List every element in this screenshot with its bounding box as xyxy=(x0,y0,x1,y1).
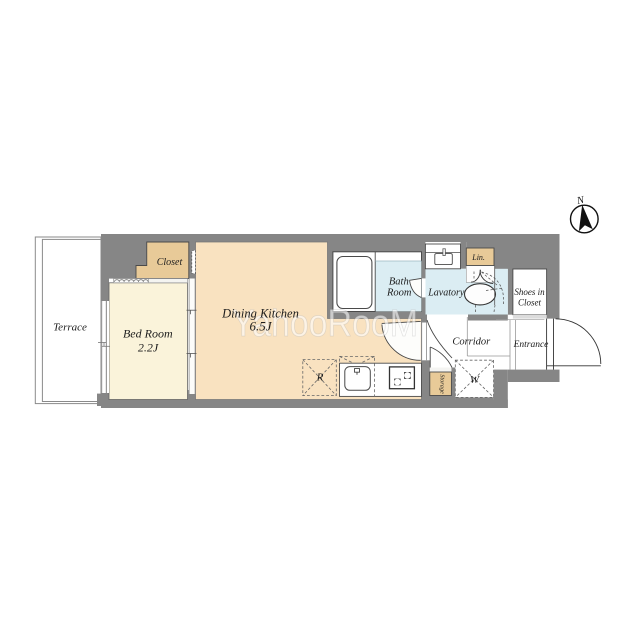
svg-text:R: R xyxy=(316,372,324,384)
svg-text:Room: Room xyxy=(386,288,412,299)
svg-text:Closet: Closet xyxy=(157,257,183,268)
svg-text:6.5J: 6.5J xyxy=(249,319,272,334)
svg-text:Lin.: Lin. xyxy=(471,253,485,262)
svg-text:Storage: Storage xyxy=(438,374,445,394)
svg-text:Shoes in: Shoes in xyxy=(514,287,545,297)
svg-text:W: W xyxy=(470,374,480,386)
svg-text:Bed Room: Bed Room xyxy=(123,327,173,341)
svg-text:2.2J: 2.2J xyxy=(138,341,159,355)
svg-text:Bath: Bath xyxy=(389,277,409,288)
svg-text:Entrance: Entrance xyxy=(513,340,549,350)
svg-text:Corridor: Corridor xyxy=(452,337,491,348)
svg-text:Terrace: Terrace xyxy=(53,322,87,334)
svg-text:Closet: Closet xyxy=(518,298,542,308)
svg-text:Lavatory: Lavatory xyxy=(427,288,465,299)
